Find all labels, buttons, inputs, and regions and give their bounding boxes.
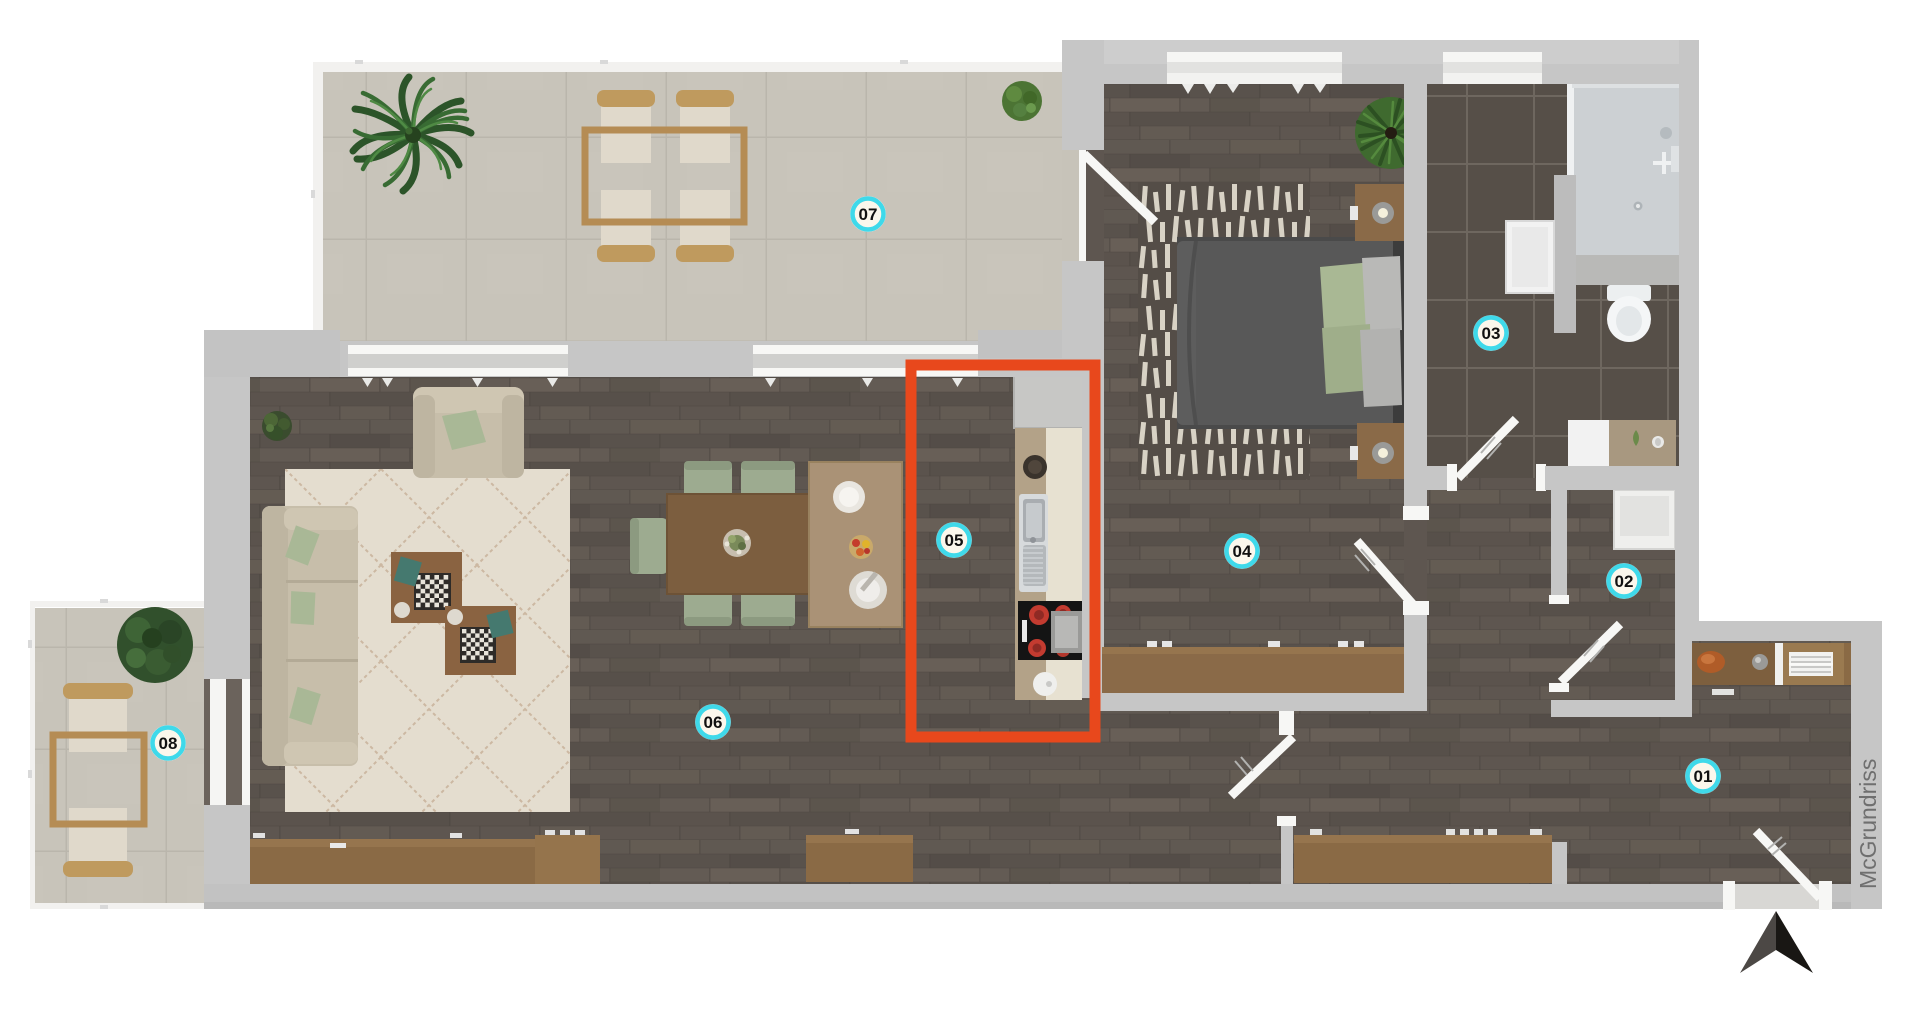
svg-text:McGrundriss: McGrundriss bbox=[1855, 759, 1881, 889]
svg-text:03: 03 bbox=[1482, 324, 1501, 343]
svg-text:08: 08 bbox=[159, 734, 178, 753]
svg-text:02: 02 bbox=[1615, 572, 1634, 591]
svg-text:05: 05 bbox=[945, 531, 964, 550]
svg-text:06: 06 bbox=[704, 713, 723, 732]
svg-text:07: 07 bbox=[859, 205, 878, 224]
svg-text:04: 04 bbox=[1233, 542, 1252, 561]
svg-text:01: 01 bbox=[1694, 767, 1713, 786]
